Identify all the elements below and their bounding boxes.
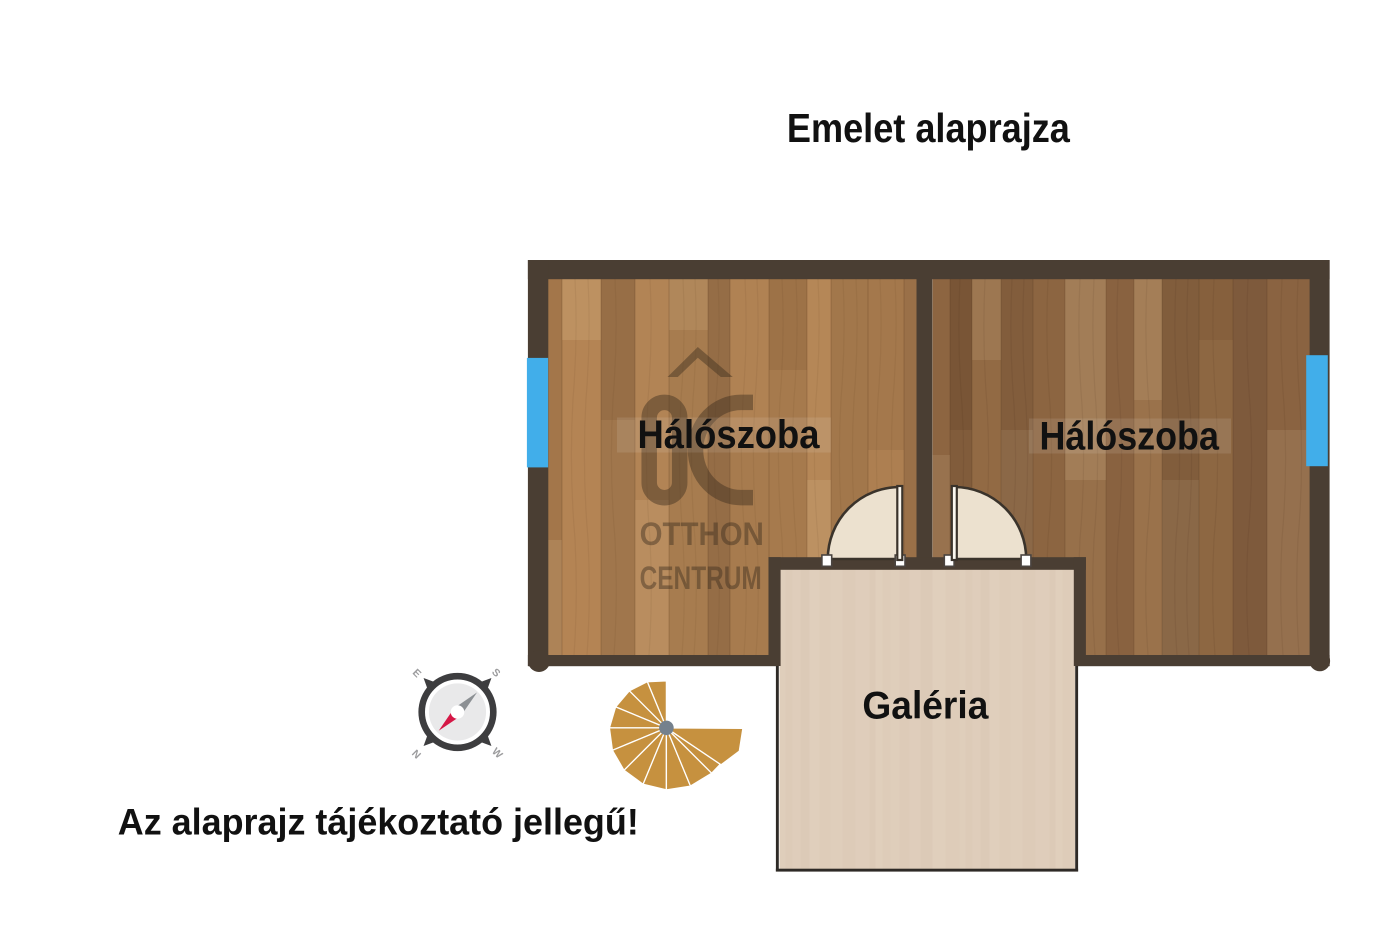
svg-text:OTTHON: OTTHON (640, 516, 764, 552)
svg-text:CENTRUM: CENTRUM (640, 560, 762, 596)
svg-text:Az alaprajz tájékoztató jelleg: Az alaprajz tájékoztató jellegű! (118, 801, 639, 842)
svg-text:Galéria: Galéria (862, 684, 988, 727)
svg-text:Emelet alaprajza: Emelet alaprajza (787, 105, 1071, 151)
svg-text:Hálószoba: Hálószoba (638, 413, 821, 457)
svg-text:Hálószoba: Hálószoba (1039, 415, 1219, 459)
